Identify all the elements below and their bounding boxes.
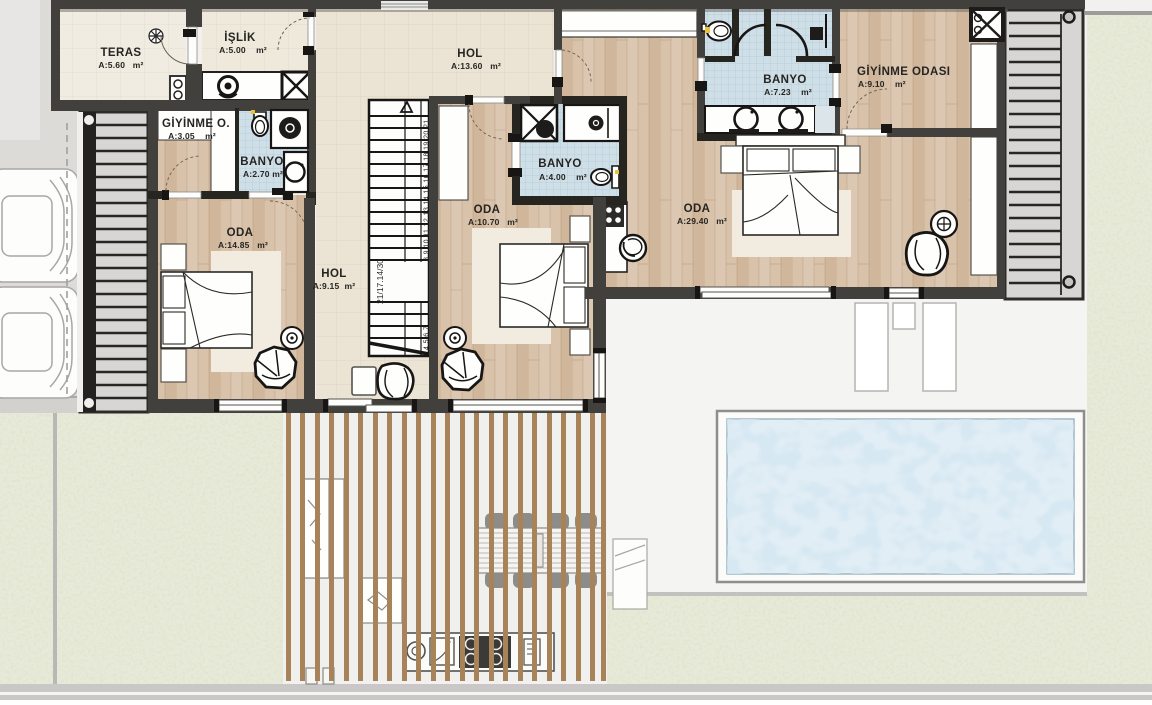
svg-text:A:7.23 m²: A:7.23 m² bbox=[764, 87, 812, 97]
svg-text:21/17.14/30: 21/17.14/30 bbox=[375, 259, 385, 304]
svg-text:A:3.05 m²: A:3.05 m² bbox=[168, 131, 216, 141]
svg-text:ODA: ODA bbox=[474, 204, 501, 216]
svg-text:A:29.40 m²: A:29.40 m² bbox=[677, 216, 727, 226]
svg-text:A:9.15 m²: A:9.15 m² bbox=[313, 281, 356, 291]
svg-text:ODA: ODA bbox=[227, 227, 254, 239]
svg-text:A:9.10 m²: A:9.10 m² bbox=[858, 79, 906, 89]
svg-text:A:5.60 m²: A:5.60 m² bbox=[98, 60, 143, 70]
svg-text:HOL: HOL bbox=[321, 268, 346, 280]
svg-text:A:5.00 m²: A:5.00 m² bbox=[219, 45, 267, 55]
svg-text:BANYO: BANYO bbox=[240, 156, 284, 168]
svg-text:GİYİNME O.: GİYİNME O. bbox=[162, 117, 230, 130]
svg-text:A:4.00 m²: A:4.00 m² bbox=[539, 172, 587, 182]
svg-text:A:13.60 m²: A:13.60 m² bbox=[451, 61, 501, 71]
svg-text:GİYİNME ODASI: GİYİNME ODASI bbox=[857, 65, 950, 78]
svg-text:A:10.70 m²: A:10.70 m² bbox=[468, 217, 518, 227]
svg-text:TERAS: TERAS bbox=[101, 47, 142, 59]
svg-text:HOL: HOL bbox=[457, 48, 482, 60]
svg-text:BANYO: BANYO bbox=[763, 74, 807, 86]
svg-text:A:14.85 m²: A:14.85 m² bbox=[218, 240, 268, 250]
svg-text:A:2.70 m²: A:2.70 m² bbox=[243, 169, 283, 179]
svg-text:İŞLİK: İŞLİK bbox=[224, 31, 256, 44]
svg-text:ODA: ODA bbox=[684, 203, 711, 215]
svg-text:BANYO: BANYO bbox=[538, 158, 582, 170]
